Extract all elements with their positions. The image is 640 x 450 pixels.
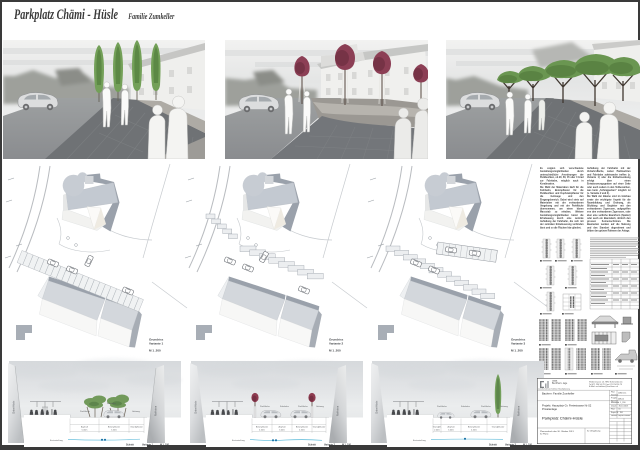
svg-text:Variante 3: Variante 3	[511, 342, 526, 346]
svg-text:Schnitt: Schnitt	[489, 444, 497, 447]
svg-text:5.00m: 5.00m	[82, 430, 88, 432]
svg-text:Grandpflaster: Grandpflaster	[130, 426, 143, 429]
svg-text:Chämi-Hüsle: Chämi-Hüsle	[377, 400, 379, 414]
svg-text:Raiffeisen: Raiffeisen	[519, 405, 521, 416]
svg-text:Variante 2: Variante 2	[324, 444, 336, 447]
svg-text:5.50m: 5.50m	[111, 430, 117, 432]
svg-text:Fahrbahn: Fahrbahn	[461, 405, 471, 408]
svg-text:Asphalt: Asphalt	[81, 426, 88, 429]
svg-text:Gehweg: Gehweg	[132, 411, 141, 413]
svg-text:Betonpflaster: Betonpflaster	[296, 426, 309, 429]
svg-text:Grandpfl.: Grandpfl.	[433, 426, 442, 429]
svg-text:4.50m: 4.50m	[259, 430, 265, 432]
svg-text:Grandpflaster: Grandpflaster	[313, 426, 326, 429]
svg-text:Parkfläche: Parkfläche	[437, 405, 448, 408]
svg-text:Asphalt: Asphalt	[279, 426, 286, 429]
svg-text:Schnitt: Schnitt	[126, 444, 134, 447]
svg-text:Grandpflaster: Grandpflaster	[492, 426, 505, 429]
svg-text:5.00m: 5.00m	[279, 430, 285, 432]
svg-text:4.50m: 4.50m	[471, 430, 477, 432]
svg-text:Variante 2: Variante 2	[329, 342, 344, 346]
svg-text:Parkfläche: Parkfläche	[260, 405, 271, 408]
svg-text:Fahrbahn: Fahrbahn	[280, 405, 290, 408]
svg-text:Parkfläche: Parkfläche	[298, 405, 309, 408]
svg-text:Parkfläche: Parkfläche	[80, 410, 91, 413]
svg-text:M 1_200: M 1_200	[329, 349, 341, 353]
svg-text:Fahrbahn: Fahrbahn	[107, 402, 117, 405]
svg-text:5.00m: 5.00m	[448, 430, 454, 432]
svg-text:Chämi-Hüsle: Chämi-Hüsle	[196, 400, 198, 414]
svg-text:Schnitt: Schnitt	[308, 444, 316, 447]
svg-text:Variante 1: Variante 1	[142, 444, 154, 447]
svg-text:Betonpflaster: Betonpflaster	[468, 426, 481, 429]
svg-text:Betonpflaster: Betonpflaster	[256, 426, 269, 429]
svg-text:M 1_100: M 1_100	[342, 445, 352, 447]
svg-text:2.00m: 2.00m	[434, 430, 440, 432]
svg-text:Raiffeisen: Raiffeisen	[156, 405, 158, 416]
svg-text:Gehweg: Gehweg	[500, 406, 509, 408]
svg-text:Variante 3: Variante 3	[505, 444, 517, 447]
svg-text:M 1_200: M 1_200	[511, 349, 523, 353]
svg-text:M 1_200: M 1_200	[149, 349, 161, 353]
svg-text:4.50m: 4.50m	[299, 430, 305, 432]
svg-text:Gehweg: Gehweg	[316, 406, 325, 408]
svg-text:M 1_100: M 1_100	[160, 445, 170, 447]
svg-text:Ersterstellung: Ersterstellung	[413, 439, 427, 442]
svg-text:Ersterstellung: Ersterstellung	[232, 439, 246, 442]
svg-text:Variante 1: Variante 1	[149, 342, 164, 346]
svg-text:Chämi-Hüsle: Chämi-Hüsle	[14, 400, 16, 414]
svg-text:Asphalt: Asphalt	[448, 426, 455, 429]
svg-text:M 1_100: M 1_100	[523, 445, 533, 447]
svg-text:Ersterstellung: Ersterstellung	[50, 439, 64, 442]
svg-text:Parkfläche: Parkfläche	[481, 405, 492, 408]
svg-text:Betonpflaster: Betonpflaster	[108, 426, 121, 429]
svg-text:Raiffeisen: Raiffeisen	[338, 405, 340, 416]
